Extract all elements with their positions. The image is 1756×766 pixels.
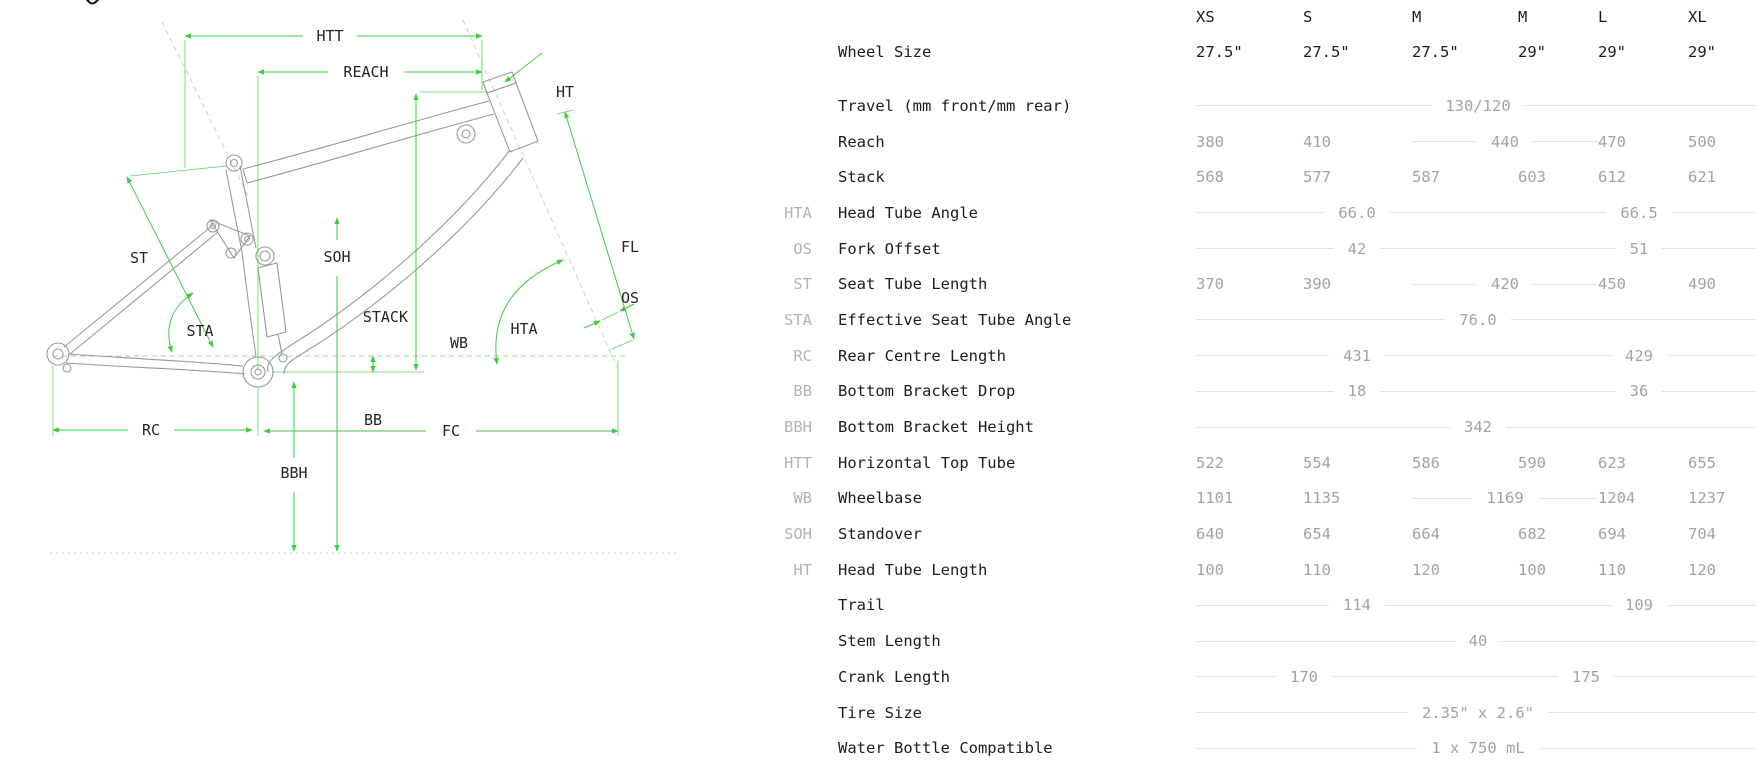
cell-value-text: 1204	[1598, 489, 1635, 507]
dim-label-sta: STA	[186, 322, 213, 340]
cell-value-text: 110	[1598, 561, 1626, 579]
size-column-header: L	[1598, 8, 1688, 26]
cell-value-text: 590	[1518, 454, 1546, 472]
row-abbr: SOH	[760, 525, 812, 543]
geometry-row: STAEffective Seat Tube Angle76.0	[760, 302, 1756, 338]
row-abbr: WB	[760, 489, 812, 507]
dim-label-ht: HT	[556, 83, 574, 101]
dim-os-tick	[602, 312, 618, 320]
cell-value-text: 694	[1598, 525, 1626, 543]
top-tube-end	[243, 169, 247, 183]
wheel-size-value: 27.5"	[1412, 43, 1518, 61]
cell-value-text: 470	[1598, 133, 1626, 151]
geometry-row: Tire Size2.35" x 2.6"	[760, 695, 1756, 731]
top-tube-upper	[243, 101, 489, 169]
geometry-row: Stem Length40	[760, 623, 1756, 659]
dim-label-fc: FC	[442, 422, 460, 440]
cell-value: 170	[1196, 668, 1412, 686]
cell-value: 586	[1412, 454, 1518, 472]
cell-value-text: 664	[1412, 525, 1440, 543]
cell-value-text: 568	[1196, 168, 1224, 186]
cell-value: 500	[1688, 133, 1756, 151]
cell-value-text: 429	[1625, 347, 1653, 365]
top-tube-lower	[247, 114, 494, 183]
cell-value-text: 390	[1303, 275, 1331, 293]
cell-value: 640	[1196, 525, 1303, 543]
geometry-row: HTAHead Tube Angle66.066.5	[760, 195, 1756, 231]
cell-value-text: 66.5	[1620, 204, 1657, 222]
geometry-row: Stack568577587603612621	[760, 159, 1756, 195]
cell-value-text: 110	[1303, 561, 1331, 579]
cell-value-text: 100	[1518, 561, 1546, 579]
cell-value: 1204	[1598, 489, 1688, 507]
seat-tube-axis-line	[162, 22, 250, 200]
dim-hta-arc	[496, 260, 563, 364]
cell-value: 1 x 750 mL	[1196, 739, 1756, 757]
cell-value: 18	[1196, 382, 1518, 400]
row-label: Effective Seat Tube Angle	[838, 311, 1196, 329]
cell-value: 66.0	[1196, 204, 1518, 222]
cell-value-text: 704	[1688, 525, 1716, 543]
row-label: Wheelbase	[838, 489, 1196, 507]
geometry-row: Reach380410440470500	[760, 124, 1756, 160]
cell-value: 664	[1412, 525, 1518, 543]
cell-value: 612	[1598, 168, 1688, 186]
cell-value-text: 554	[1303, 454, 1331, 472]
cell-value-text: 76.0	[1459, 311, 1496, 329]
row-label: Head Tube Length	[838, 561, 1196, 579]
dim-st-ext-top	[130, 166, 226, 176]
rocker-pivot-1	[207, 220, 219, 232]
cell-value: 1169	[1412, 489, 1598, 507]
size-column-header: S	[1303, 8, 1412, 26]
wheel-size-value: 29"	[1688, 43, 1756, 61]
row-label: Rear Centre Length	[838, 347, 1196, 365]
dim-label-stack: STACK	[363, 308, 408, 326]
geometry-row: BBHBottom Bracket Height342	[760, 409, 1756, 445]
cell-value-text: 577	[1303, 168, 1331, 186]
row-abbr: RC	[760, 347, 812, 365]
steering-axis-line	[463, 20, 617, 367]
cell-value-text: 522	[1196, 454, 1224, 472]
dim-os-offset-line	[612, 340, 633, 349]
geometry-row: BBBottom Bracket Drop1836	[760, 374, 1756, 410]
cell-value-text: 36	[1630, 382, 1649, 400]
cell-value-text: 66.0	[1338, 204, 1375, 222]
headset-cap	[483, 72, 516, 93]
cell-value-text: 1 x 750 mL	[1431, 739, 1524, 757]
cell-value: 522	[1196, 454, 1303, 472]
cell-value: 621	[1688, 168, 1756, 186]
cell-value-text: 586	[1412, 454, 1440, 472]
geometry-row: SOHStandover640654664682694704	[760, 516, 1756, 552]
wheel-size-value: 27.5"	[1303, 43, 1412, 61]
cell-value: 76.0	[1196, 311, 1756, 329]
cell-value: 370	[1196, 275, 1303, 293]
cell-value: 40	[1196, 632, 1756, 650]
geometry-row: RCRear Centre Length431429	[760, 338, 1756, 374]
row-label: Seat Tube Length	[838, 275, 1196, 293]
cell-value-text: 51	[1630, 240, 1649, 258]
geometry-table: XSSMMLXL Wheel Size27.5"27.5"27.5"29"29"…	[760, 0, 1756, 766]
cropped-page-title-glyph	[86, 0, 99, 5]
cell-value: 470	[1598, 133, 1688, 151]
cell-value-text: 170	[1290, 668, 1318, 686]
size-column-header: XS	[1196, 8, 1303, 26]
geometry-row: WBWheelbase11011135116912041237	[760, 481, 1756, 517]
rear-axle-outer	[47, 343, 69, 365]
cell-value: 587	[1412, 168, 1518, 186]
row-abbr: STA	[760, 311, 812, 329]
cell-value: 429	[1518, 347, 1756, 365]
cell-value: 42	[1196, 240, 1518, 258]
geometry-page: HTT REACH HT STACK ST	[0, 0, 1756, 761]
cell-value: 694	[1598, 525, 1688, 543]
cell-value: 110	[1598, 561, 1688, 579]
row-label: Reach	[838, 133, 1196, 151]
cell-value-text: 440	[1491, 133, 1519, 151]
row-abbr: BB	[760, 382, 812, 400]
cell-value-text: 120	[1688, 561, 1716, 579]
cell-value: 380	[1196, 133, 1303, 151]
cell-value: 342	[1196, 418, 1756, 436]
shock-shaft	[278, 334, 282, 354]
frame-drawing-svg: HTT REACH HT STACK ST	[0, 0, 710, 600]
cell-value-text: 109	[1625, 596, 1653, 614]
geometry-row: Travel (mm front/mm rear)130/120	[760, 88, 1756, 124]
dim-ht-leader	[505, 53, 542, 82]
cell-value-text: 682	[1518, 525, 1546, 543]
cell-value: 110	[1303, 561, 1412, 579]
cell-value: 130/120	[1196, 97, 1756, 115]
cell-value: 431	[1196, 347, 1518, 365]
cell-value-text: 42	[1348, 240, 1367, 258]
cell-value: 51	[1518, 240, 1756, 258]
cell-value-text: 655	[1688, 454, 1716, 472]
cell-value-text: 114	[1343, 596, 1371, 614]
head-tube	[487, 83, 538, 152]
derailleur-hanger	[63, 364, 71, 372]
size-column-header: XL	[1688, 8, 1756, 26]
row-abbr: HT	[760, 561, 812, 579]
cell-value: 577	[1303, 168, 1412, 186]
cell-value: 36	[1518, 382, 1756, 400]
row-label: Horizontal Top Tube	[838, 454, 1196, 472]
cell-value-text: 2.35" x 2.6"	[1422, 704, 1534, 722]
cell-value: 120	[1412, 561, 1518, 579]
geometry-row: Trail114109	[760, 588, 1756, 624]
cell-value-text: 420	[1491, 275, 1519, 293]
row-label: Stack	[838, 168, 1196, 186]
cell-value: 420	[1412, 275, 1598, 293]
dim-label-soh: SOH	[323, 248, 350, 266]
geometry-row: STSeat Tube Length370390420450490	[760, 266, 1756, 302]
cell-value: 1101	[1196, 489, 1303, 507]
row-abbr: OS	[760, 240, 812, 258]
cell-value: 682	[1518, 525, 1598, 543]
cell-value-text: 1169	[1486, 489, 1523, 507]
wheel-size-value: 27.5"	[1196, 43, 1303, 61]
cell-value: 390	[1303, 275, 1412, 293]
cell-value: 66.5	[1518, 204, 1756, 222]
cell-value-text: 450	[1598, 275, 1626, 293]
row-label: Crank Length	[838, 668, 1196, 686]
dim-label-reach: REACH	[343, 63, 388, 81]
shock-eyelet	[279, 354, 287, 362]
cell-value-text: 380	[1196, 133, 1224, 151]
dim-label-hta: HTA	[510, 320, 537, 338]
shock-reservoir-outer	[256, 247, 274, 265]
cell-value-text: 40	[1469, 632, 1488, 650]
down-tube-upper	[268, 150, 510, 372]
cell-value-text: 370	[1196, 275, 1224, 293]
cell-value-text: 612	[1598, 168, 1626, 186]
size-header-row: XSSMMLXL	[760, 0, 1756, 34]
cell-value-text: 623	[1598, 454, 1626, 472]
cell-value-text: 175	[1572, 668, 1600, 686]
dimension-annotations: HTT REACH HT STACK ST	[53, 27, 639, 551]
top-tube-detail-outer	[457, 125, 475, 143]
geometry-row: OSFork Offset4251	[760, 231, 1756, 267]
row-label: Tire Size	[838, 704, 1196, 722]
cell-value-text: 120	[1412, 561, 1440, 579]
shock-body	[258, 263, 286, 337]
cell-value: 450	[1598, 275, 1688, 293]
cell-value: 114	[1196, 596, 1518, 614]
cell-value: 704	[1688, 525, 1756, 543]
cell-value: 490	[1688, 275, 1756, 293]
cell-value: 120	[1688, 561, 1756, 579]
cell-value: 568	[1196, 168, 1303, 186]
size-column-header: M	[1518, 8, 1598, 26]
cell-value: 1237	[1688, 489, 1756, 507]
bike-geometry-diagram: HTT REACH HT STACK ST	[0, 0, 710, 600]
size-column-header: M	[1412, 8, 1518, 26]
cell-value: 654	[1303, 525, 1412, 543]
cell-value-text: 1237	[1688, 489, 1725, 507]
cell-value-text: 654	[1303, 525, 1331, 543]
wheel-size-label: Wheel Size	[838, 43, 1196, 61]
dim-label-wb: WB	[450, 334, 468, 352]
wheel-size-value: 29"	[1598, 43, 1688, 61]
reference-axes	[50, 20, 680, 553]
dim-label-bb: BB	[364, 411, 382, 429]
cell-value-text: 18	[1348, 382, 1367, 400]
cell-value: 655	[1688, 454, 1756, 472]
rear-axle-inner	[53, 349, 63, 359]
cell-value-text: 621	[1688, 168, 1716, 186]
row-label: Stem Length	[838, 632, 1196, 650]
dim-label-rc: RC	[142, 421, 160, 439]
row-abbr: BBH	[760, 418, 812, 436]
dim-os-arrow-left	[584, 321, 600, 328]
cell-value-text: 342	[1464, 418, 1492, 436]
cell-value: 623	[1598, 454, 1688, 472]
row-label: Head Tube Angle	[838, 204, 1196, 222]
cell-value: 2.35" x 2.6"	[1196, 704, 1756, 722]
seat-tube-left	[226, 170, 242, 252]
dim-label-os: OS	[621, 289, 639, 307]
shock-reservoir-inner	[260, 251, 270, 261]
cell-value: 440	[1412, 133, 1598, 151]
row-label: Fork Offset	[838, 240, 1196, 258]
cell-value-text: 410	[1303, 133, 1331, 151]
cell-value-text: 130/120	[1445, 97, 1510, 115]
cell-value-text: 500	[1688, 133, 1716, 151]
cell-value: 100	[1518, 561, 1598, 579]
row-label: Water Bottle Compatible	[838, 739, 1196, 757]
cell-value: 554	[1303, 454, 1412, 472]
cell-value-text: 640	[1196, 525, 1224, 543]
down-tube-lower	[284, 158, 523, 374]
row-label: Travel (mm front/mm rear)	[838, 97, 1196, 115]
cell-value: 109	[1518, 596, 1756, 614]
cell-value: 1135	[1303, 489, 1412, 507]
cell-value: 100	[1196, 561, 1303, 579]
row-abbr: HTA	[760, 204, 812, 222]
dim-label-htt: HTT	[316, 27, 343, 45]
cell-value: 410	[1303, 133, 1412, 151]
cell-value: 603	[1518, 168, 1598, 186]
cell-value-text: 603	[1518, 168, 1546, 186]
row-label: Standover	[838, 525, 1196, 543]
seat-tube-lower	[242, 252, 256, 356]
row-abbr: HTT	[760, 454, 812, 472]
dim-label-bbh: BBH	[280, 464, 307, 482]
row-abbr: ST	[760, 275, 812, 293]
cell-value-text: 100	[1196, 561, 1224, 579]
cell-value-text: 431	[1343, 347, 1371, 365]
geometry-row: HTHead Tube Length100110120100110120	[760, 552, 1756, 588]
row-label: Bottom Bracket Height	[838, 418, 1196, 436]
top-tube-detail-inner	[462, 130, 470, 138]
wheel-size-row: Wheel Size27.5"27.5"27.5"29"29"29"	[760, 34, 1756, 70]
cell-value-text: 1135	[1303, 489, 1340, 507]
geometry-row: Crank Length170175	[760, 659, 1756, 695]
row-label: Bottom Bracket Drop	[838, 382, 1196, 400]
row-label: Trail	[838, 596, 1196, 614]
table-spacer	[760, 70, 1756, 88]
table-body: Travel (mm front/mm rear)130/120Reach380…	[760, 88, 1756, 766]
cell-value-text: 587	[1412, 168, 1440, 186]
dim-label-fl: FL	[621, 238, 639, 256]
cell-value: 590	[1518, 454, 1598, 472]
chainstay-lower	[66, 363, 245, 374]
geometry-row: HTTHorizontal Top Tube522554586590623655	[760, 445, 1756, 481]
cell-value-text: 490	[1688, 275, 1716, 293]
cell-value: 175	[1412, 668, 1756, 686]
wheel-size-value: 29"	[1518, 43, 1598, 61]
dim-label-st: ST	[130, 249, 148, 267]
cell-value-text: 1101	[1196, 489, 1233, 507]
